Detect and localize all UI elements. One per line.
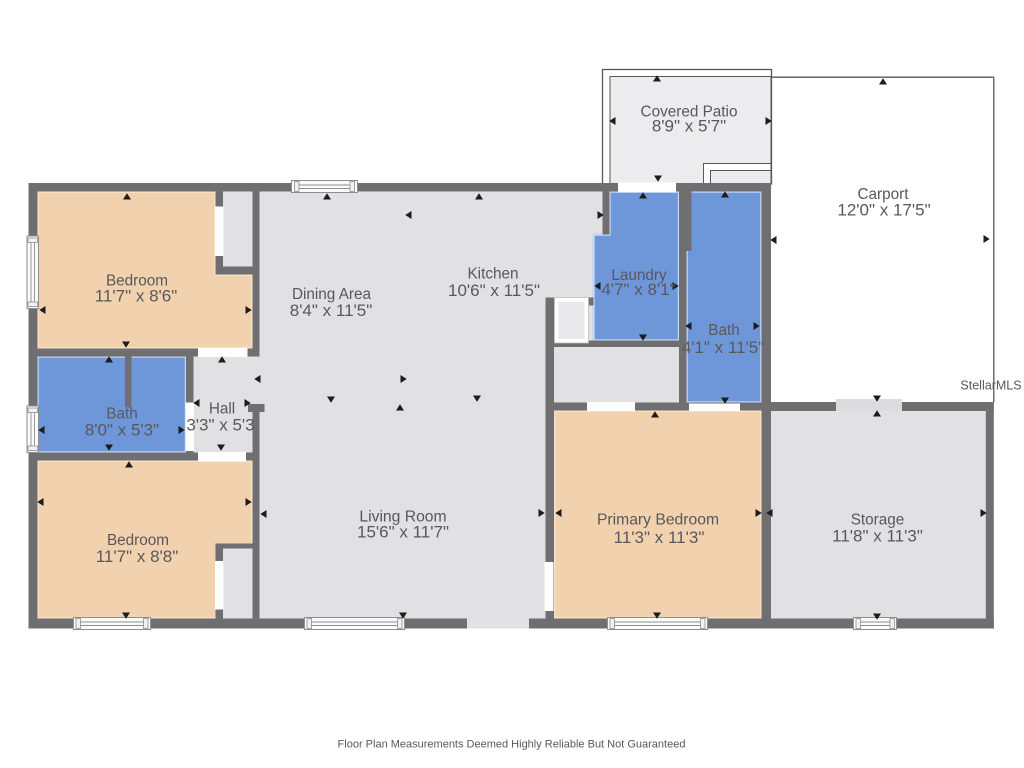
svg-text:12'0" x 17'5": 12'0" x 17'5" [837,201,930,220]
svg-text:11'3" x 11'3": 11'3" x 11'3" [614,528,705,547]
svg-text:3'3" x 5'3: 3'3" x 5'3 [186,416,254,435]
svg-text:8'0" x 5'3": 8'0" x 5'3" [85,421,159,440]
svg-text:11'7" x 8'8": 11'7" x 8'8" [96,547,179,566]
svg-text:10'6" x 11'5": 10'6" x 11'5" [448,281,540,300]
svg-text:8'9" x 5'7": 8'9" x 5'7" [652,117,726,136]
svg-text:Bath: Bath [708,322,739,339]
svg-text:Floor Plan Measurements Deemed: Floor Plan Measurements Deemed Highly Re… [338,739,686,751]
svg-text:4'7" x 8'1": 4'7" x 8'1" [601,280,675,299]
svg-text:4'1" x 11'5": 4'1" x 11'5" [682,338,765,357]
svg-text:Primary Bedroom: Primary Bedroom [597,512,719,529]
svg-text:15'6" x 11'7": 15'6" x 11'7" [357,523,449,542]
svg-text:11'7" x 8'6": 11'7" x 8'6" [95,287,178,306]
svg-text:StellarMLS: StellarMLS [960,379,1021,393]
svg-text:Kitchen: Kitchen [467,266,518,283]
svg-text:11'8" x 11'3": 11'8" x 11'3" [832,527,923,546]
svg-text:8'4" x 11'5": 8'4" x 11'5" [290,301,373,320]
